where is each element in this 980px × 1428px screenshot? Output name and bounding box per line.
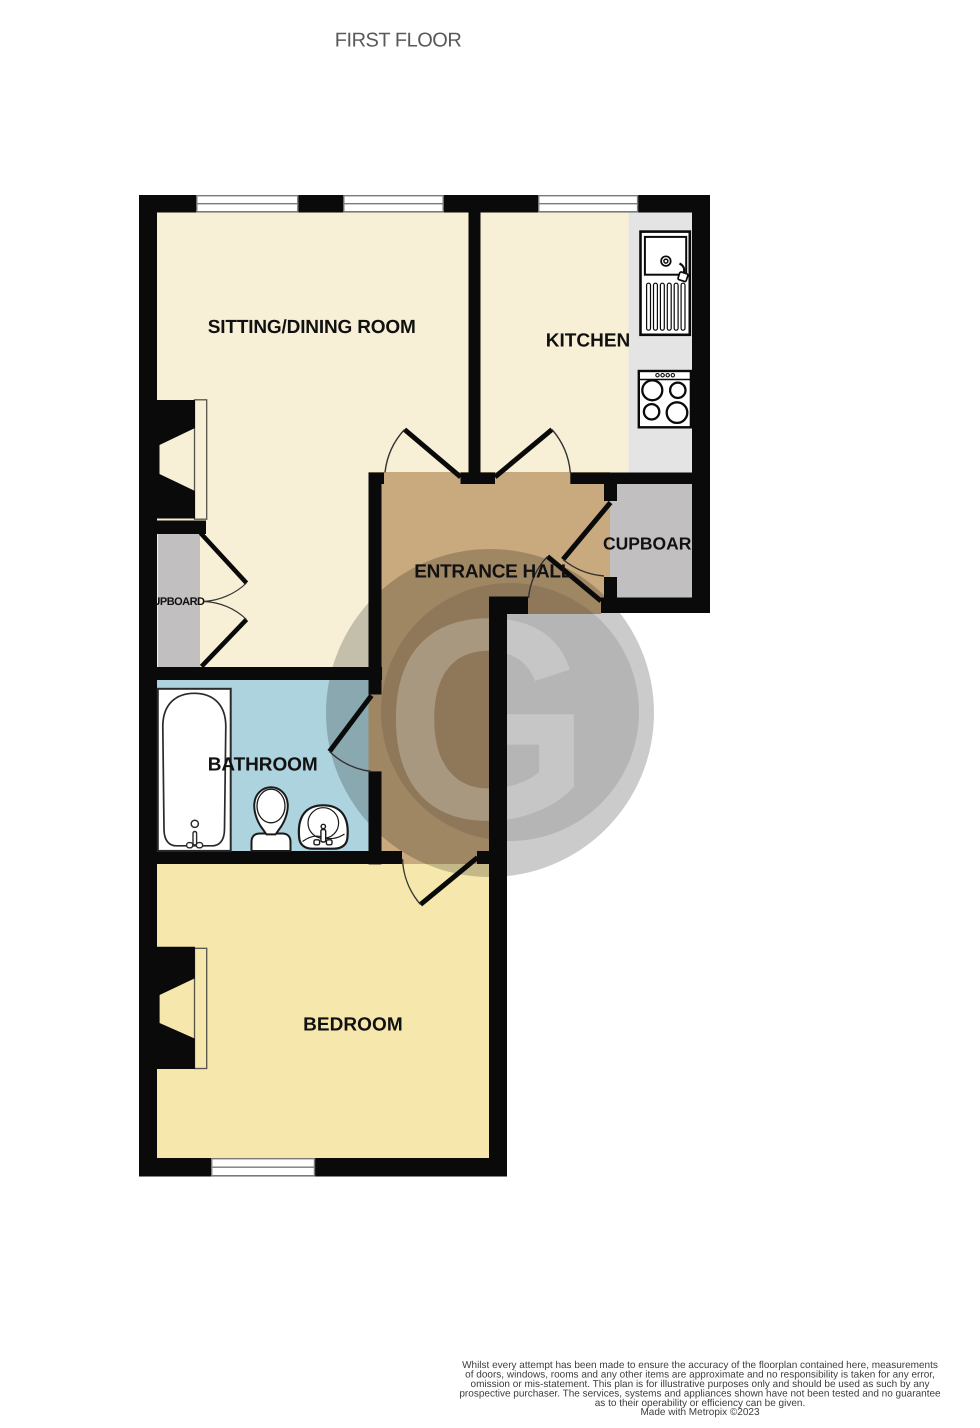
svg-text:G: G (385, 559, 590, 879)
svg-text:SITTING/DINING ROOM: SITTING/DINING ROOM (208, 317, 416, 338)
svg-text:Made with Metropix ©2023: Made with Metropix ©2023 (640, 1407, 760, 1418)
svg-text:CUPBOARD: CUPBOARD (603, 534, 704, 554)
svg-text:BEDROOM: BEDROOM (303, 1015, 403, 1036)
svg-text:ENTRANCE HALL: ENTRANCE HALL (414, 562, 572, 583)
svg-text:BATHROOM: BATHROOM (208, 755, 318, 776)
svg-text:FIRST FLOOR: FIRST FLOOR (335, 30, 462, 52)
svg-text:KITCHEN: KITCHEN (546, 331, 631, 352)
